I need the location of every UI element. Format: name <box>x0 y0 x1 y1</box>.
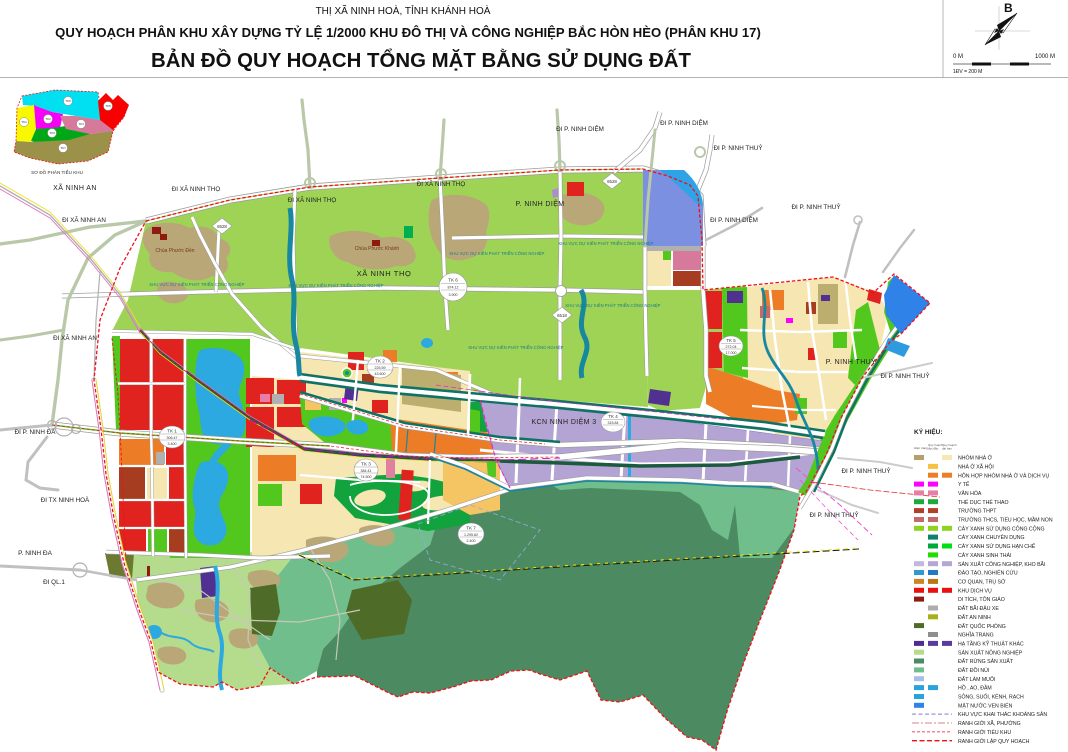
svg-text:TK6: TK6 <box>65 99 71 103</box>
svg-text:TK 6: TK 6 <box>448 278 458 283</box>
svg-text:TK7: TK7 <box>60 146 66 150</box>
svg-text:TK1: TK1 <box>21 120 27 124</box>
svg-text:ĐI P. NINH THUỶ: ĐI P. NINH THUỶ <box>880 371 930 380</box>
svg-text:TK2: TK2 <box>45 117 51 121</box>
svg-text:NHÀ Ở XÃ HỘI: NHÀ Ở XÃ HỘI <box>958 464 994 471</box>
svg-text:NHÓM NHÀ Ở: NHÓM NHÀ Ở <box>958 455 993 462</box>
svg-text:ĐI TX NINH HOÀ: ĐI TX NINH HOÀ <box>41 495 90 504</box>
svg-text:TK4: TK4 <box>78 122 84 126</box>
svg-text:TRƯỜNG THCS, TIỂU HỌC, MẦM NON: TRƯỜNG THCS, TIỂU HỌC, MẦM NON <box>958 517 1053 524</box>
svg-text:2.400: 2.400 <box>467 539 476 543</box>
svg-text:TK 5: TK 5 <box>726 338 736 343</box>
svg-text:TK3: TK3 <box>49 131 55 135</box>
svg-text:RANH GIỚI XÃ, PHƯỜNG: RANH GIỚI XÃ, PHƯỜNG <box>958 720 1021 727</box>
svg-text:Chùa Phước Khánh: Chùa Phước Khánh <box>355 246 400 252</box>
svg-text:CÂY XANH CHUYÊN DỤNG: CÂY XANH CHUYÊN DỤNG <box>958 533 1025 541</box>
svg-text:17.000: 17.000 <box>726 351 737 355</box>
svg-text:HỖN HỢP NHÓM NHÀ Ở VÀ DỊCH VỤ: HỖN HỢP NHÓM NHÀ Ở VÀ DỊCH VỤ <box>958 472 1049 479</box>
svg-text:THỊ XÃ NINH HOÀ, TỈNH KHÁNH HO: THỊ XÃ NINH HOÀ, TỈNH KHÁNH HOÀ <box>316 4 491 17</box>
svg-text:CÂY XANH SỬ DỤNG CÔNG CỘNG: CÂY XANH SỬ DỤNG CÔNG CỘNG <box>958 525 1044 532</box>
svg-text:TK5: TK5 <box>105 104 111 108</box>
svg-text:1ĐV = 200 M: 1ĐV = 200 M <box>953 69 982 75</box>
svg-text:ĐẤT LÀM MUỐI: ĐẤT LÀM MUỐI <box>958 676 995 683</box>
svg-text:Y TẾ: Y TẾ <box>958 481 970 488</box>
svg-text:ĐI P. NINH ĐA: ĐI P. NINH ĐA <box>15 429 57 436</box>
svg-text:KHU VỰC DỰ KIẾN PHÁT TRIỂN CÔN: KHU VỰC DỰ KIẾN PHÁT TRIỂN CÔNG NGHIỆP <box>289 283 384 288</box>
svg-text:KÝ HIỆU:: KÝ HIỆU: <box>914 427 943 436</box>
svg-text:KCN NINH DIỆM 3: KCN NINH DIỆM 3 <box>531 417 596 426</box>
svg-text:1.295.62: 1.295.62 <box>464 533 478 537</box>
svg-text:ĐI P. NINH THUỶ: ĐI P. NINH THUỶ <box>841 466 891 475</box>
svg-text:XÃ NINH AN: XÃ NINH AN <box>53 183 97 192</box>
svg-text:MẶT NƯỚC VEN BIỂN: MẶT NƯỚC VEN BIỂN <box>958 702 1013 709</box>
svg-text:43.600: 43.600 <box>375 372 386 376</box>
svg-text:SƠ ĐỒ PHÂN TIỂU KHU: SƠ ĐỒ PHÂN TIỂU KHU <box>31 169 83 175</box>
svg-text:KHU VỰC DỰ KIẾN PHÁT TRIỂN CÔN: KHU VỰC DỰ KIẾN PHÁT TRIỂN CÔNG NGHIỆP <box>150 282 245 287</box>
svg-text:KHU DỊCH VỤ: KHU DỊCH VỤ <box>958 588 992 594</box>
svg-text:BẢN ĐỒ QUY HOẠCH TỔNG MẶT BẰNG: BẢN ĐỒ QUY HOẠCH TỔNG MẶT BẰNG SỬ DỤNG Đ… <box>151 48 691 72</box>
svg-text:6518: 6518 <box>557 313 567 318</box>
svg-text:XÃ NINH THỌ: XÃ NINH THỌ <box>357 269 412 278</box>
svg-text:CƠ QUAN, TRỤ SỞ: CƠ QUAN, TRỤ SỞ <box>958 579 1006 586</box>
svg-text:TK 4: TK 4 <box>608 414 618 419</box>
svg-text:225.59: 225.59 <box>375 366 386 370</box>
svg-text:Hiện trạng: Hiện trạng <box>914 446 928 450</box>
svg-text:P. NINH THUỶ: P. NINH THUỶ <box>826 357 876 366</box>
svg-text:TK 1: TK 1 <box>167 429 177 434</box>
svg-text:ĐI XÃ NINH THỌ: ĐI XÃ NINH THỌ <box>288 195 337 204</box>
svg-text:ĐI QL.1: ĐI QL.1 <box>43 579 65 586</box>
svg-text:THỂ DỤC THỂ THAO: THỂ DỤC THỂ THAO <box>958 499 1009 506</box>
svg-text:ĐI P. NINH DIỆM: ĐI P. NINH DIỆM <box>556 124 604 133</box>
svg-text:CÂY XANH SINH THÁI: CÂY XANH SINH THÁI <box>958 552 1011 559</box>
svg-text:ĐI P. NINH DIỆM: ĐI P. NINH DIỆM <box>660 118 708 127</box>
svg-text:CÂY XANH SỬ DỤNG HẠN CHẾ: CÂY XANH SỬ DỤNG HẠN CHẾ <box>958 543 1036 550</box>
svg-text:SẢN XUẤT CÔNG NGHIỆP, KHO BÃI: SẢN XUẤT CÔNG NGHIỆP, KHO BÃI <box>958 560 1045 568</box>
svg-text:3.900: 3.900 <box>449 293 458 297</box>
svg-text:SÔNG, SUỐI, KÊNH, RẠCH: SÔNG, SUỐI, KÊNH, RẠCH <box>958 693 1024 701</box>
svg-text:272.04: 272.04 <box>726 345 737 349</box>
svg-text:ĐI P. NINH DIỆM: ĐI P. NINH DIỆM <box>710 215 758 224</box>
svg-text:ĐI XÃ NINH THỌ: ĐI XÃ NINH THỌ <box>172 184 221 193</box>
svg-text:ĐẤT QUỐC PHÒNG: ĐẤT QUỐC PHÒNG <box>958 623 1006 630</box>
svg-text:DI TÍCH, TÔN GIÁO: DI TÍCH, TÔN GIÁO <box>958 596 1005 603</box>
svg-text:1000 M: 1000 M <box>1035 54 1055 60</box>
svg-text:ĐẤT AN NINH: ĐẤT AN NINH <box>958 614 991 621</box>
svg-text:TRƯỜNG THPT: TRƯỜNG THPT <box>958 508 997 515</box>
svg-text:P. NINH DIỆM: P. NINH DIỆM <box>515 199 564 208</box>
svg-text:306.47: 306.47 <box>167 436 178 440</box>
svg-text:KHU VỰC DỰ KIẾN PHÁT TRIỂN CÔN: KHU VỰC DỰ KIẾN PHÁT TRIỂN CÔNG NGHIỆP <box>559 241 654 246</box>
svg-text:874.12: 874.12 <box>448 286 459 290</box>
svg-text:RANH GIỚI LẬP QUY HOẠCH: RANH GIỚI LẬP QUY HOẠCH <box>958 738 1030 745</box>
svg-text:ĐẤT BÃI ĐẬU XE: ĐẤT BÃI ĐẬU XE <box>958 605 999 612</box>
svg-text:NGHĨA TRANG: NGHĨA TRANG <box>958 632 994 639</box>
svg-text:ĐI P. NINH THUỶ: ĐI P. NINH THUỶ <box>713 143 763 152</box>
svg-text:KHU VỰC KHAI THÁC KHOÁNG SẢN: KHU VỰC KHAI THÁC KHOÁNG SẢN <box>958 711 1047 718</box>
svg-text:74.500: 74.500 <box>361 475 372 479</box>
svg-text:384.41: 384.41 <box>361 469 372 473</box>
svg-text:TK 7: TK 7 <box>466 526 476 531</box>
svg-text:đợt đầu: đợt đầu <box>928 447 939 451</box>
svg-text:TK 2: TK 2 <box>375 359 385 364</box>
svg-text:ĐẤT ĐỒI NÚI: ĐẤT ĐỒI NÚI <box>958 667 989 674</box>
svg-text:P. NINH ĐA: P. NINH ĐA <box>18 550 52 557</box>
svg-text:ĐẤT RỪNG SẢN XUẤT: ĐẤT RỪNG SẢN XUẤT <box>958 658 1014 665</box>
svg-text:ĐI XÃ NINH AN: ĐI XÃ NINH AN <box>53 333 97 342</box>
svg-text:RANH GIỚI TIỂU KHU: RANH GIỚI TIỂU KHU <box>958 729 1011 736</box>
svg-text:TK 3: TK 3 <box>361 462 371 467</box>
svg-text:3.400: 3.400 <box>168 442 177 446</box>
svg-text:VĂN HÓA: VĂN HÓA <box>958 490 982 497</box>
svg-text:Chùa Phước Đền: Chùa Phước Đền <box>155 248 194 254</box>
svg-text:315.84: 315.84 <box>608 421 619 425</box>
svg-text:ĐÀO TẠO, NGHIÊN CỨU: ĐÀO TẠO, NGHIÊN CỨU <box>958 569 1018 577</box>
svg-text:SẢN XUẤT NÔNG NGHIỆP: SẢN XUẤT NÔNG NGHIỆP <box>958 648 1023 656</box>
svg-text:KHU VỰC DỰ KIẾN PHÁT TRIỂN CÔN: KHU VỰC DỰ KIẾN PHÁT TRIỂN CÔNG NGHIỆP <box>450 251 545 256</box>
svg-text:B: B <box>1004 1 1013 15</box>
svg-text:KHU VỰC DỰ KIẾN PHÁT TRIỂN CÔN: KHU VỰC DỰ KIẾN PHÁT TRIỂN CÔNG NGHIỆP <box>566 303 661 308</box>
svg-text:6528: 6528 <box>607 179 617 184</box>
svg-text:ĐI P. NINH THUỶ: ĐI P. NINH THUỶ <box>791 202 841 211</box>
svg-text:ĐI XÃ NINH THỌ: ĐI XÃ NINH THỌ <box>417 179 466 188</box>
svg-text:ĐI XÃ NINH AN: ĐI XÃ NINH AN <box>62 215 106 224</box>
svg-text:6528: 6528 <box>217 224 227 229</box>
svg-text:KHU VỰC DỰ KIẾN PHÁT TRIỂN CÔN: KHU VỰC DỰ KIẾN PHÁT TRIỂN CÔNG NGHIỆP <box>469 345 564 350</box>
svg-text:HẠ TẦNG KỸ THUẬT KHÁC: HẠ TẦNG KỸ THUẬT KHÁC <box>958 641 1024 648</box>
svg-text:QUY HOẠCH PHÂN KHU XÂY DỰNG TỶ: QUY HOẠCH PHÂN KHU XÂY DỰNG TỶ LỆ 1/2000… <box>55 25 761 40</box>
svg-text:ĐI P. NINH THUỶ: ĐI P. NINH THUỶ <box>809 510 859 519</box>
svg-text:HỒ , AO, ĐẦM: HỒ , AO, ĐẦM <box>958 685 992 692</box>
svg-text:0 M: 0 M <box>953 54 963 60</box>
svg-text:dài hạn: dài hạn <box>942 447 952 451</box>
